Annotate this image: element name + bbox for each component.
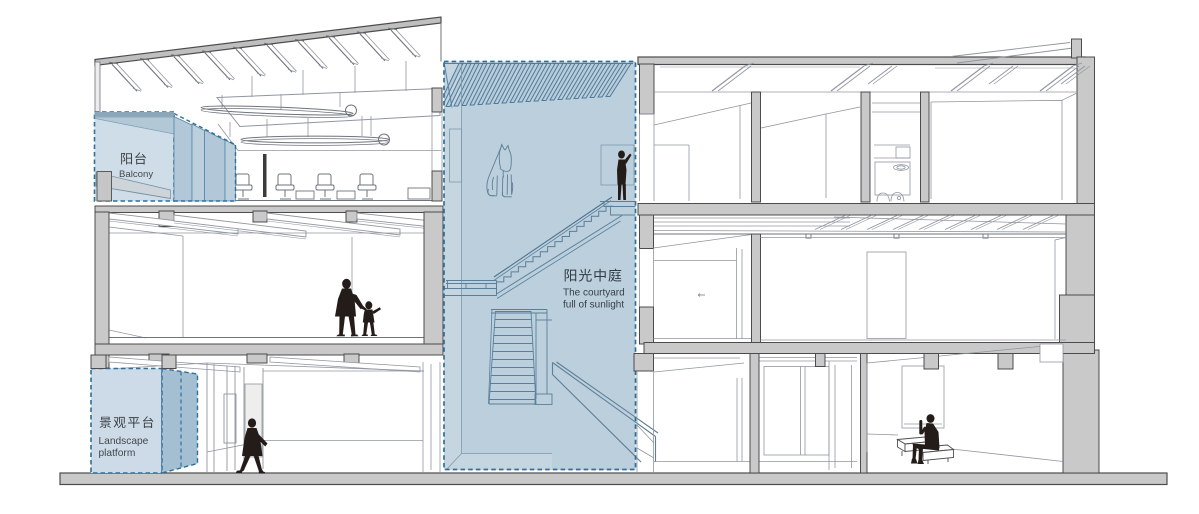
svg-text:full of sunlight: full of sunlight [563, 300, 624, 311]
svg-text:platform: platform [99, 448, 136, 459]
svg-text:The courtyard: The courtyard [563, 288, 625, 299]
svg-text:Landscape: Landscape [99, 436, 149, 447]
svg-text:Balcony: Balcony [119, 169, 153, 180]
